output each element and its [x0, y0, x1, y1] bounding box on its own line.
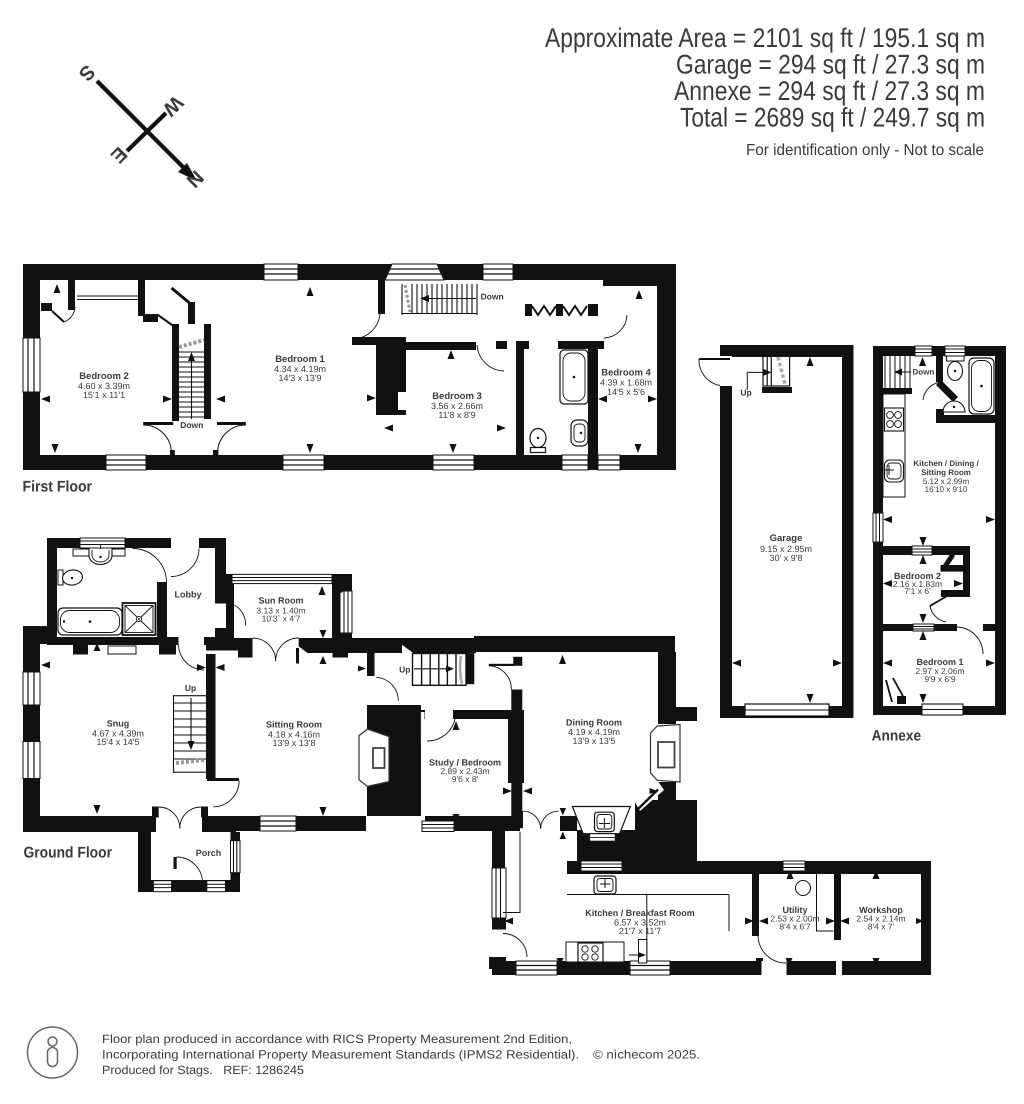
svg-text:Sun Room: Sun Room [259, 596, 304, 606]
svg-text:7'1 x 6': 7'1 x 6' [904, 586, 931, 596]
svg-text:16'10 x 9'10: 16'10 x 9'10 [925, 485, 968, 494]
svg-text:For identification only - Not: For identification only - Not to scale [746, 142, 984, 159]
svg-text:Down: Down [913, 368, 935, 377]
svg-text:14'5 x 5'6: 14'5 x 5'6 [607, 387, 645, 397]
svg-text:© nìchecom 2025.: © nìchecom 2025. [593, 1048, 700, 1062]
svg-text:Up: Up [740, 388, 751, 398]
svg-text:Kitchen / Dining /: Kitchen / Dining / [913, 459, 979, 468]
svg-text:Kitchen / Breakfast Room: Kitchen / Breakfast Room [585, 908, 695, 918]
svg-text:Incorporating International Pr: Incorporating International Property Mea… [102, 1048, 579, 1062]
svg-text:21'7 x 11'7: 21'7 x 11'7 [619, 926, 661, 936]
svg-text:Snug: Snug [107, 719, 130, 729]
svg-text:Porch: Porch [196, 848, 222, 858]
svg-text:Down: Down [481, 292, 504, 302]
svg-text:Produced for Stags. REF: 128: Produced for Stags. REF: 1286245 [102, 1063, 304, 1077]
svg-text:Sitting Room: Sitting Room [266, 720, 322, 730]
svg-text:13'9 x 13'5: 13'9 x 13'5 [573, 736, 616, 746]
svg-text:Total = 2689 sq ft / 249.7 sq: Total = 2689 sq ft / 249.7 sq m [680, 103, 985, 133]
svg-text:Sitting Room: Sitting Room [921, 468, 971, 477]
svg-text:Up: Up [399, 664, 410, 674]
svg-text:8'4 x 6'7: 8'4 x 6'7 [779, 922, 810, 932]
svg-text:10'3` x 4'7: 10'3` x 4'7 [262, 614, 301, 624]
svg-text:Up: Up [185, 683, 196, 693]
svg-text:Dining Room: Dining Room [566, 718, 622, 728]
svg-text:Down: Down [180, 420, 203, 430]
svg-text:Floor plan produced in accorda: Floor plan produced in accordance with R… [102, 1032, 572, 1046]
svg-text:14'3 x 13'9: 14'3 x 13'9 [279, 373, 322, 383]
svg-text:4.39 x 1.68m: 4.39 x 1.68m [600, 378, 652, 388]
svg-text:9'9 x 6'9: 9'9 x 6'9 [924, 674, 955, 684]
svg-text:13'9 x 13'8: 13'9 x 13'8 [273, 738, 316, 748]
svg-text:First Floor: First Floor [23, 479, 93, 496]
svg-text:Annexe = 294 sq ft / 27.3 sq m: Annexe = 294 sq ft / 27.3 sq m [674, 76, 985, 106]
svg-text:Approximate Area = 2101 sq ft: Approximate Area = 2101 sq ft / 195.1 sq… [545, 23, 985, 53]
svg-text:Ground Floor: Ground Floor [24, 845, 113, 862]
svg-text:30' x 9'8: 30' x 9'8 [770, 553, 803, 563]
svg-text:15'1 x 11'1: 15'1 x 11'1 [83, 390, 125, 400]
svg-text:Garage = 294 sq ft / 27.3 sq m: Garage = 294 sq ft / 27.3 sq m [676, 50, 985, 80]
svg-text:9'6 x 8': 9'6 x 8' [452, 774, 479, 784]
svg-text:Lobby: Lobby [175, 590, 202, 600]
svg-text:Garage: Garage [770, 533, 803, 544]
svg-text:15'4 x 14'5: 15'4 x 14'5 [97, 737, 140, 747]
svg-text:8'4 x 7': 8'4 x 7' [868, 922, 895, 932]
svg-text:Annexe: Annexe [872, 728, 922, 745]
svg-text:11'8 x 8'9: 11'8 x 8'9 [438, 410, 475, 420]
